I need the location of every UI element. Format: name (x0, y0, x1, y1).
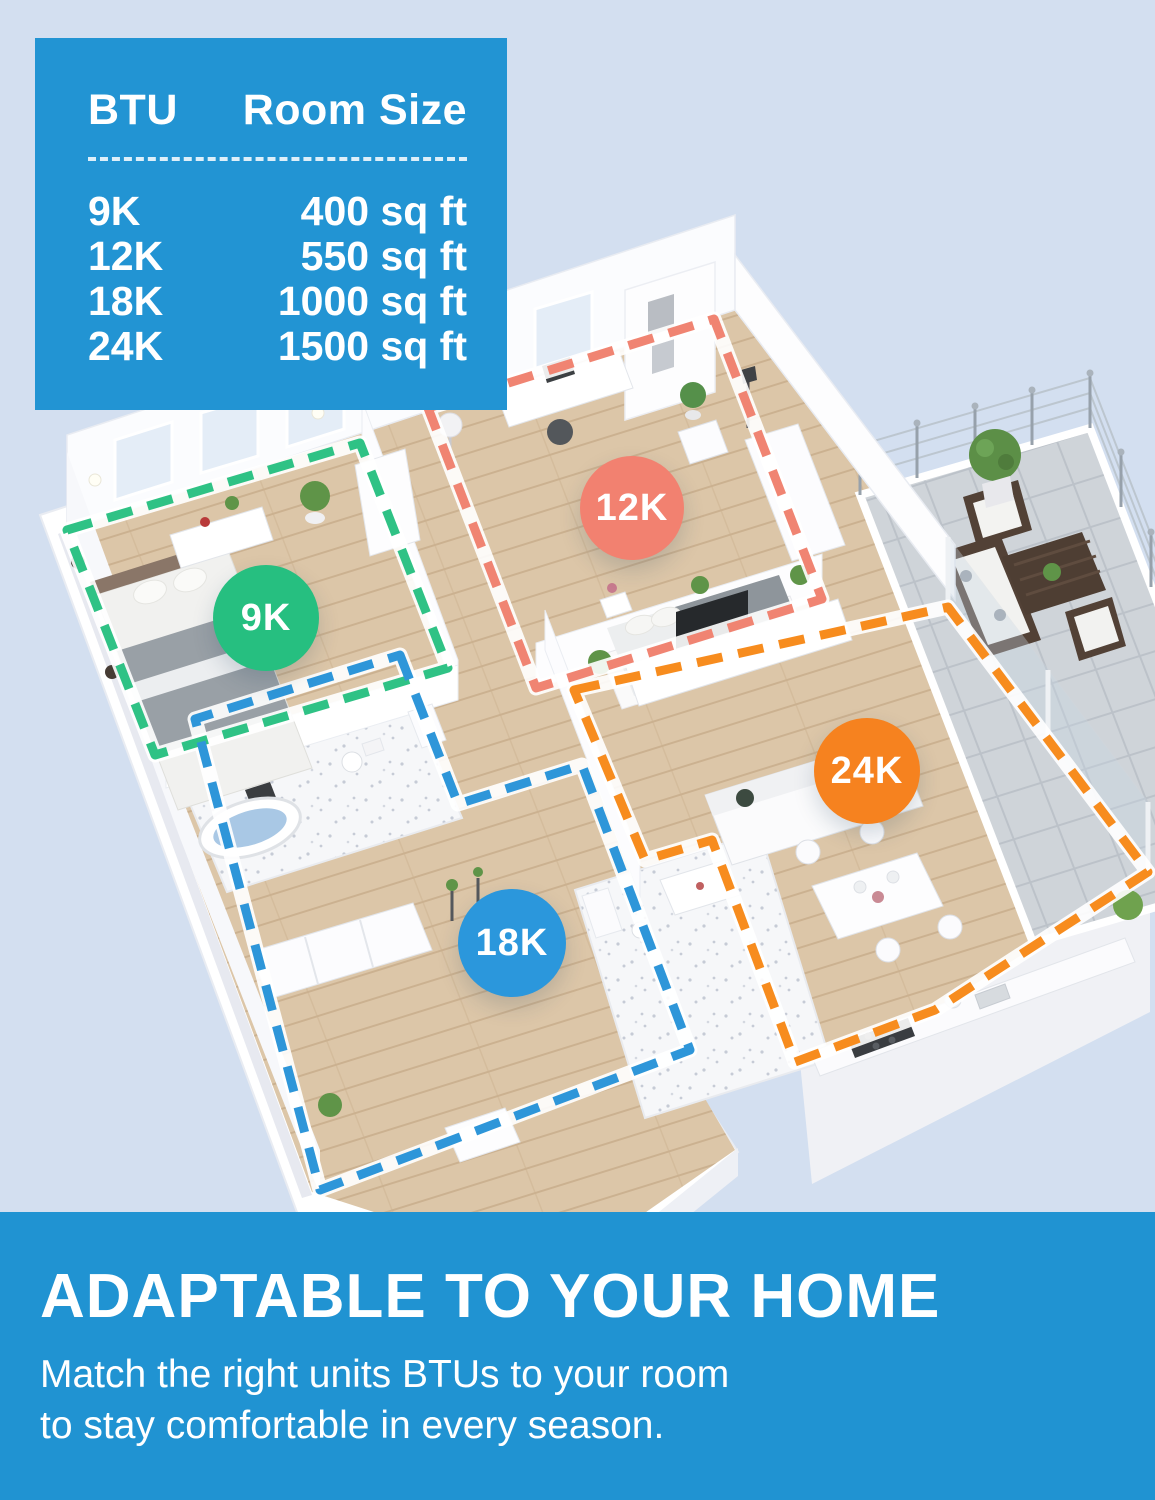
btu-value: 12K (88, 233, 163, 280)
potted-plant (680, 382, 706, 408)
room-size-value: 1000 sq ft (278, 278, 467, 325)
banner-heading: ADAPTABLE TO YOUR HOME (40, 1266, 1115, 1328)
table-row: 9K 400 sq ft (88, 189, 467, 234)
btu-column-header: BTU (88, 86, 178, 135)
bottom-banner: ADAPTABLE TO YOUR HOME Match the right u… (0, 1212, 1155, 1500)
room-size-column-header: Room Size (243, 86, 467, 135)
table-row: 12K 550 sq ft (88, 234, 467, 279)
dining-chair (938, 915, 962, 939)
banner-subtitle-line2: to stay comfortable in every season. (40, 1404, 664, 1447)
office-chair (547, 419, 573, 445)
btu-value: 18K (88, 278, 163, 325)
zone-badge-12k: 12K (580, 456, 684, 560)
potted-plant (300, 481, 330, 511)
product-infographic: BTU Room Size 9K 400 sq ft 12K 550 sq ft… (0, 0, 1155, 1500)
toilet (342, 752, 362, 772)
banner-subtitle-line1: Match the right units BTUs to your room (40, 1353, 729, 1396)
btu-value: 9K (88, 188, 140, 235)
dining-chair (796, 840, 820, 864)
room-size-value: 1500 sq ft (278, 323, 467, 370)
room-size-value: 550 sq ft (301, 233, 467, 280)
room-size-value: 400 sq ft (301, 188, 467, 235)
table-row: 18K 1000 sq ft (88, 279, 467, 324)
btu-value: 24K (88, 323, 163, 370)
zone-badge-18k: 18K (458, 889, 566, 997)
zone-badge-9k: 9K (213, 565, 319, 671)
potted-plant (318, 1093, 342, 1117)
dining-chair (876, 938, 900, 962)
table-divider (88, 157, 467, 161)
wall-sconce (89, 474, 101, 486)
zone-badge-24k: 24K (814, 718, 920, 824)
table-row: 24K 1500 sq ft (88, 324, 467, 369)
btu-sizing-table: BTU Room Size 9K 400 sq ft 12K 550 sq ft… (35, 38, 507, 410)
banner-subtitle: Match the right units BTUs to your room … (40, 1350, 1115, 1451)
